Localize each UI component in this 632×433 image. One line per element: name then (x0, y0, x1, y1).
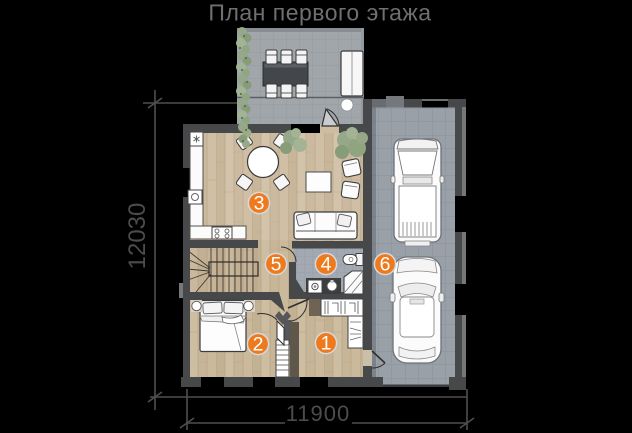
svg-text:1: 1 (321, 333, 332, 355)
svg-text:5: 5 (271, 254, 282, 276)
svg-text:6: 6 (380, 254, 391, 276)
svg-text:2: 2 (253, 334, 264, 356)
svg-text:11900: 11900 (286, 401, 351, 426)
svg-text:12030: 12030 (124, 203, 151, 270)
svg-text:План первого этажа: План первого этажа (208, 0, 431, 26)
svg-text:3: 3 (254, 193, 265, 215)
svg-text:4: 4 (321, 254, 332, 276)
